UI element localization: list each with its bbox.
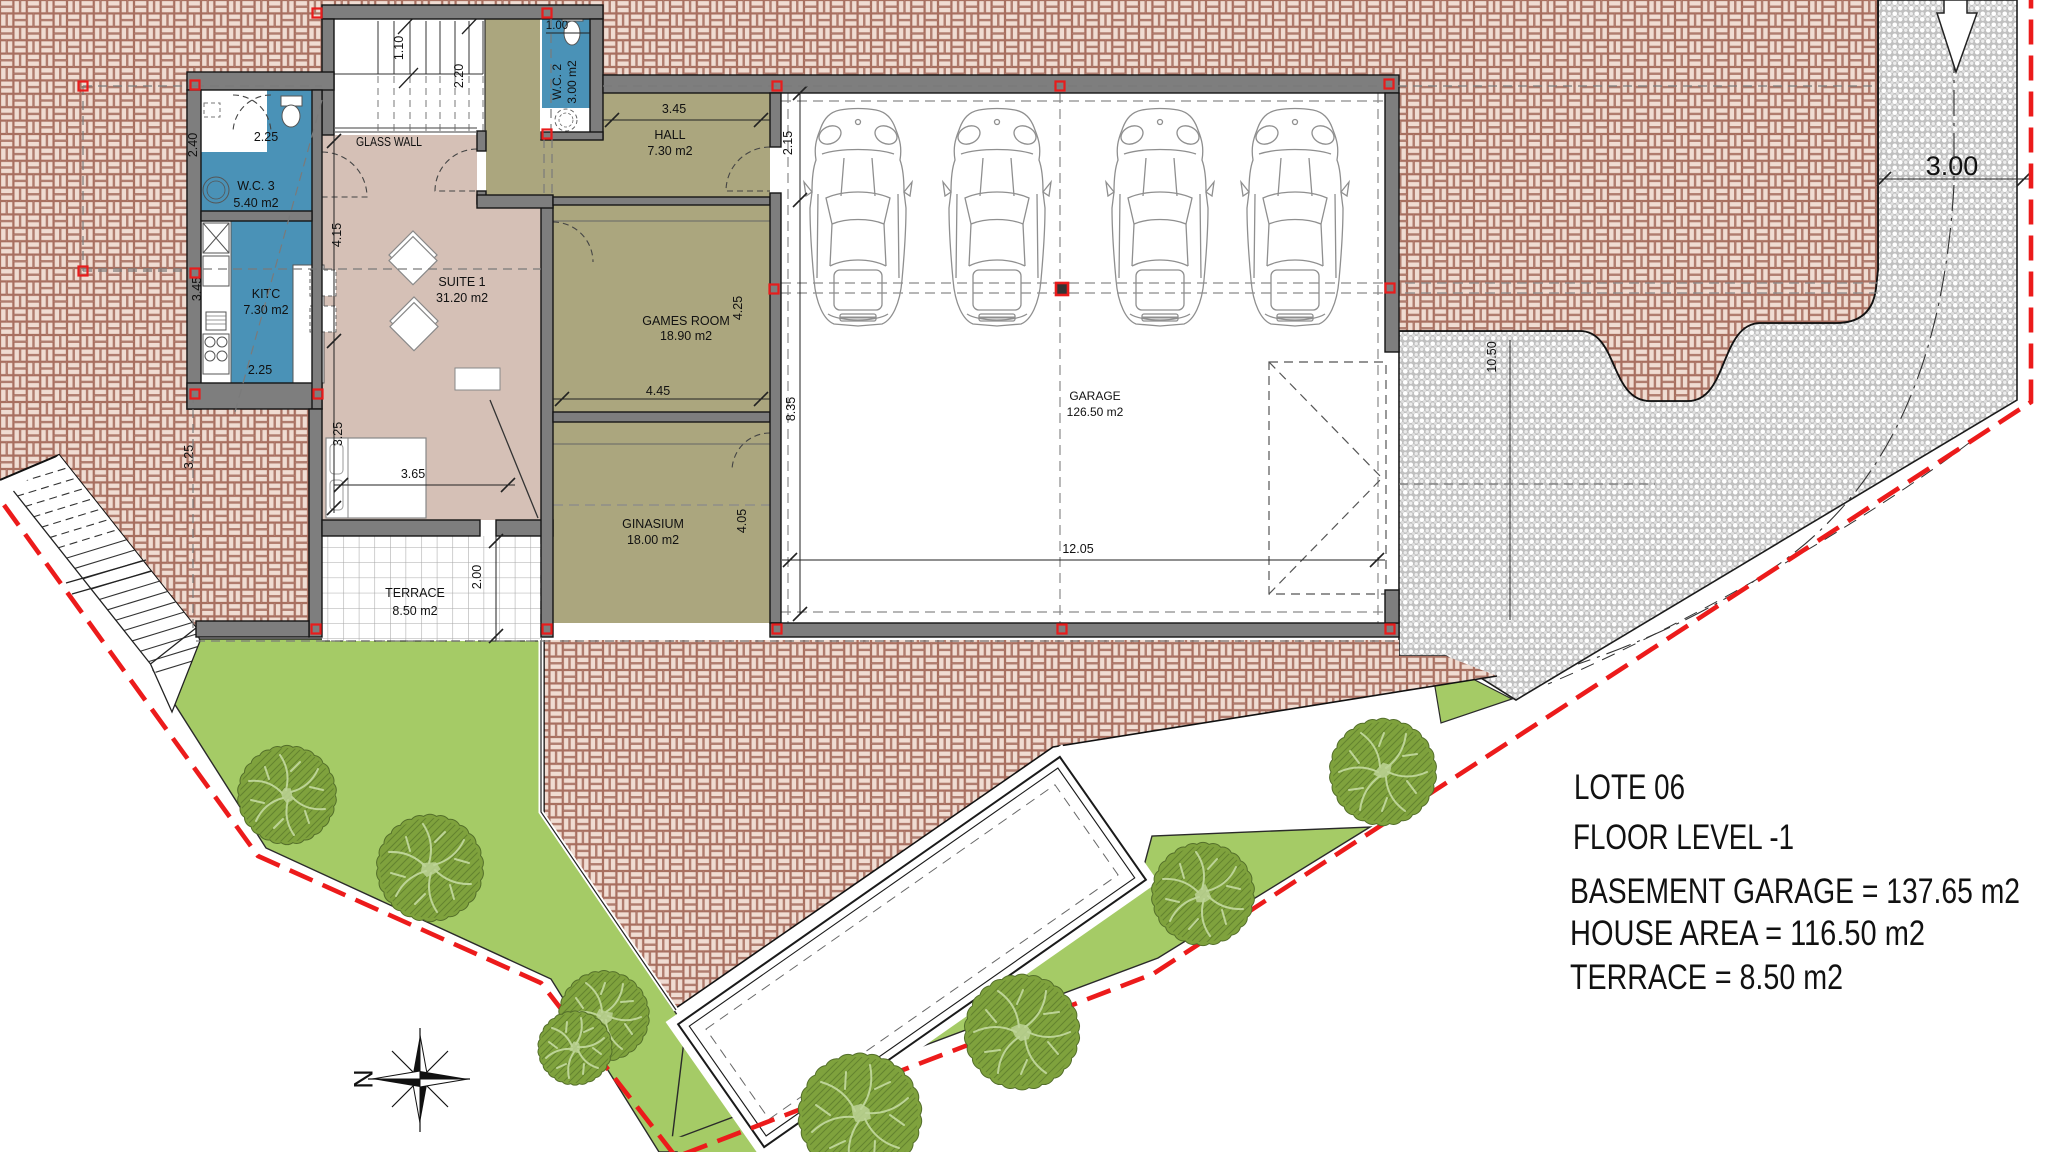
svg-text:10.50: 10.50 (1485, 341, 1499, 372)
svg-text:3.65: 3.65 (401, 467, 425, 481)
svg-text:TERRACE: TERRACE (385, 586, 445, 600)
svg-text:8.35: 8.35 (784, 397, 798, 421)
svg-text:HALL: HALL (654, 128, 685, 142)
svg-text:4.25: 4.25 (731, 296, 745, 320)
svg-text:4.15: 4.15 (330, 223, 344, 247)
svg-text:N: N (348, 1069, 378, 1089)
svg-text:BASEMENT GARAGE = 137.65 m2: BASEMENT GARAGE = 137.65 m2 (1570, 872, 2020, 911)
svg-text:2.00: 2.00 (470, 565, 484, 589)
svg-text:FLOOR LEVEL -1: FLOOR LEVEL -1 (1573, 818, 1794, 857)
svg-text:3.25: 3.25 (182, 445, 196, 469)
svg-text:2.25: 2.25 (254, 130, 278, 144)
svg-text:8.50 m2: 8.50 m2 (392, 604, 437, 618)
svg-text:GLASS WALL: GLASS WALL (356, 134, 422, 149)
svg-text:LOTE 06: LOTE 06 (1574, 768, 1685, 807)
svg-text:2.40: 2.40 (186, 133, 200, 157)
svg-text:3.00: 3.00 (1926, 151, 1979, 181)
svg-text:W.C. 2: W.C. 2 (550, 64, 564, 100)
svg-text:3.45: 3.45 (190, 277, 204, 301)
svg-text:7.30 m2: 7.30 m2 (647, 144, 692, 158)
svg-text:KITC: KITC (252, 287, 280, 301)
svg-text:3.45: 3.45 (662, 102, 686, 116)
svg-text:GAMES ROOM: GAMES ROOM (642, 314, 730, 328)
svg-text:7.30 m2: 7.30 m2 (243, 303, 288, 317)
svg-text:W.C. 3: W.C. 3 (237, 179, 275, 193)
svg-text:18.90 m2: 18.90 m2 (660, 329, 712, 343)
svg-text:2.15: 2.15 (781, 131, 795, 155)
svg-text:2.25: 2.25 (248, 363, 272, 377)
svg-text:1.10: 1.10 (392, 36, 406, 60)
svg-text:5.40 m2: 5.40 m2 (233, 196, 278, 210)
svg-text:3.00 m2: 3.00 m2 (565, 60, 579, 104)
svg-text:GINASIUM: GINASIUM (622, 517, 684, 531)
svg-text:18.00 m2: 18.00 m2 (627, 533, 679, 547)
svg-text:3.25: 3.25 (331, 422, 345, 446)
svg-text:31.20 m2: 31.20 m2 (436, 291, 488, 305)
svg-text:HOUSE AREA = 116.50 m2: HOUSE AREA = 116.50 m2 (1570, 914, 1925, 953)
svg-text:2.20: 2.20 (452, 64, 466, 88)
svg-text:126.50 m2: 126.50 m2 (1067, 405, 1124, 419)
svg-text:12.05: 12.05 (1062, 542, 1093, 556)
svg-text:SUITE 1: SUITE 1 (438, 275, 485, 289)
svg-text:GARAGE: GARAGE (1069, 389, 1120, 403)
svg-text:1.00: 1.00 (546, 20, 568, 32)
svg-text:4.45: 4.45 (646, 384, 670, 398)
svg-text:4.05: 4.05 (735, 509, 749, 533)
svg-text:TERRACE = 8.50 m2: TERRACE = 8.50 m2 (1570, 958, 1843, 997)
